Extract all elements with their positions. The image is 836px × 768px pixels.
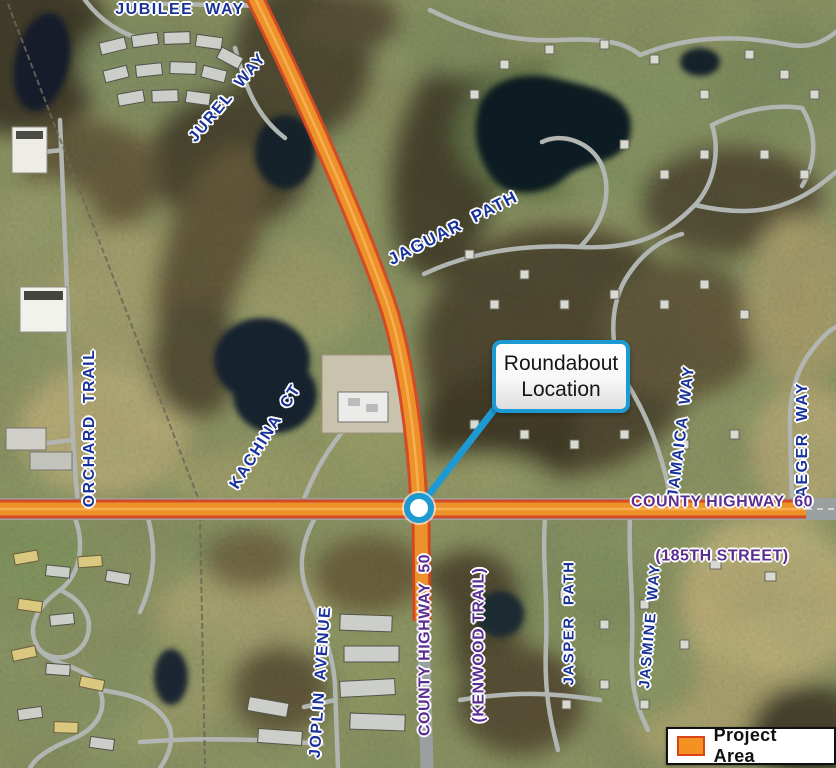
aerial-basemap: [0, 0, 836, 768]
project-area-swatch-icon: [677, 736, 705, 756]
aerial-map-figure: JUBILEE WAY JUREL WAY JAGUAR PATH ORCHAR…: [0, 0, 836, 768]
project-area-legend: Project Area: [666, 727, 836, 765]
roundabout-location-callout: Roundabout Location: [492, 340, 630, 413]
roundabout-marker: [403, 492, 435, 524]
project-area-label: Project Area: [714, 725, 821, 767]
